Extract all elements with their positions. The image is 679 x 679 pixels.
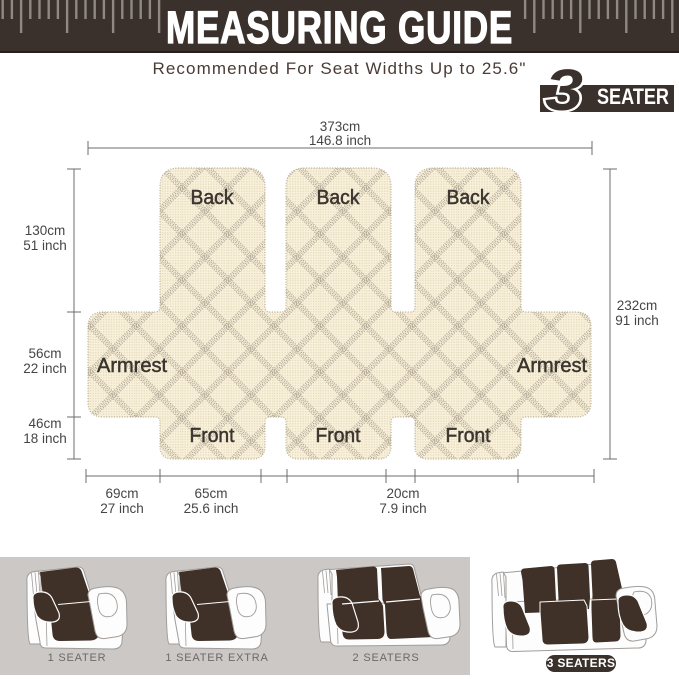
- svg-text:22 inch: 22 inch: [23, 361, 67, 376]
- svg-text:51 inch: 51 inch: [23, 238, 67, 253]
- svg-text:18 inch: 18 inch: [23, 431, 67, 446]
- svg-text:65cm: 65cm: [194, 486, 227, 501]
- svg-text:69cm: 69cm: [105, 486, 138, 501]
- svg-text:25.6 inch: 25.6 inch: [184, 501, 239, 516]
- svg-text:373cm: 373cm: [320, 119, 361, 134]
- svg-text:Back: Back: [317, 187, 361, 209]
- svg-text:Armrest: Armrest: [97, 355, 167, 377]
- svg-text:146.8 inch: 146.8 inch: [309, 133, 371, 148]
- svg-text:130cm: 130cm: [25, 223, 66, 238]
- svg-text:Armrest: Armrest: [517, 355, 587, 377]
- svg-text:Front: Front: [446, 425, 491, 447]
- svg-text:27 inch: 27 inch: [100, 501, 144, 516]
- svg-text:Front: Front: [316, 425, 361, 447]
- svg-text:46cm: 46cm: [28, 416, 61, 431]
- svg-text:Back: Back: [447, 187, 491, 209]
- svg-text:7.9 inch: 7.9 inch: [379, 501, 426, 516]
- svg-text:Back: Back: [191, 187, 235, 209]
- svg-text:91 inch: 91 inch: [615, 313, 659, 328]
- svg-text:56cm: 56cm: [28, 346, 61, 361]
- svg-text:232cm: 232cm: [617, 298, 658, 313]
- svg-text:Front: Front: [190, 425, 235, 447]
- svg-text:20cm: 20cm: [386, 486, 419, 501]
